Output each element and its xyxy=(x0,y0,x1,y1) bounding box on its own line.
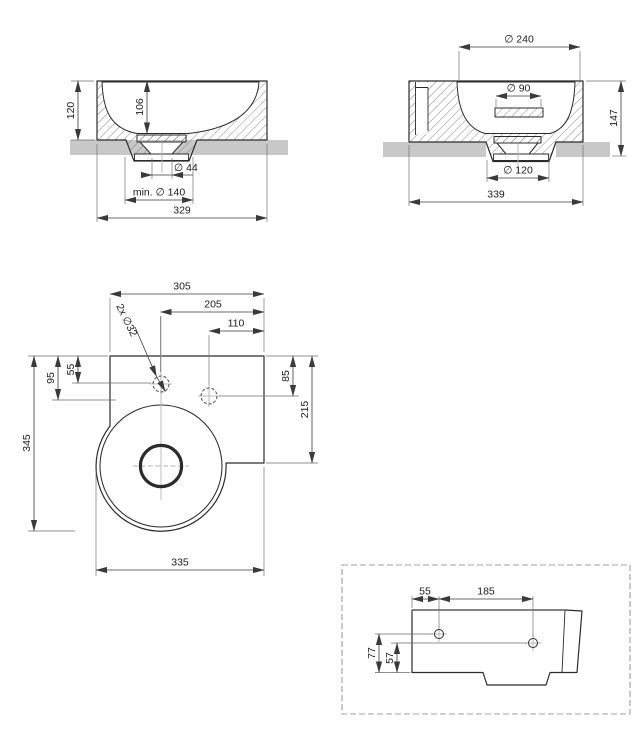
drain-pedestal-base xyxy=(135,154,189,161)
dim-label-bowl-diameter: ∅ 240 xyxy=(504,34,534,46)
dim-label-ledge-depth: 215 xyxy=(299,401,311,419)
dim-label-hole1-from-left: 55 xyxy=(419,586,431,598)
dim-label-hole2-offset: 110 xyxy=(228,318,245,330)
basin-rear-outline xyxy=(412,610,582,685)
dim-label-side-depth: 339 xyxy=(487,189,505,201)
dim-label-front-width: 329 xyxy=(173,205,191,217)
dim-label-hole1-from-top: 55 xyxy=(65,364,77,376)
washbasin-dimension-drawing: 120 106 ∅ 44 min. ∅ 140 329 xyxy=(0,0,640,733)
back-wall-face xyxy=(416,83,428,135)
dim-label-bowl-depth: 106 xyxy=(134,98,146,116)
dim-label-hole2-from-top: 85 xyxy=(280,370,292,382)
dim-label-hole1-height: 77 xyxy=(366,647,378,659)
mounting-surface-band xyxy=(383,142,486,157)
plan-view: 2x ∅32 305 205 110 345 xyxy=(21,281,318,577)
dim-label-drain-hole: ∅ 44 xyxy=(174,162,198,174)
dim-label-min-clearance: min. ∅ 140 xyxy=(133,187,185,199)
dim-label-hole1-offset: 205 xyxy=(204,299,222,311)
drain-flange xyxy=(137,135,186,142)
dim-label-hole-spacing: 185 xyxy=(477,586,495,598)
dim-label-plan-width-top: 305 xyxy=(173,281,191,293)
drain-pedestal-base xyxy=(494,154,549,161)
dim-label-bowl-from-top: 95 xyxy=(45,372,57,384)
dim-label-waste-cover: ∅ 90 xyxy=(507,83,531,95)
dim-label-tap-holes: 2x ∅32 xyxy=(113,302,139,339)
side-section-view: ∅ 240 ∅ 90 147 ∅ 120 339 xyxy=(383,34,626,207)
basin-plan-outline xyxy=(96,356,264,531)
dim-label-base-width: ∅ 120 xyxy=(503,165,533,177)
dim-label-plan-depth: 345 xyxy=(21,434,33,452)
front-section-view: 120 106 ∅ 44 min. ∅ 140 329 xyxy=(65,81,288,222)
dim-label-hole2-height: 57 xyxy=(384,652,396,664)
rear-detail-view: 55 185 77 57 xyxy=(342,565,630,714)
drain-flange xyxy=(494,137,541,144)
dim-label-front-height: 120 xyxy=(65,102,77,120)
dim-label-plan-width: 335 xyxy=(171,557,189,569)
dim-label-side-height: 147 xyxy=(608,109,620,127)
technical-drawing-sheet: 120 106 ∅ 44 min. ∅ 140 329 xyxy=(0,0,640,733)
waste-cover-section xyxy=(495,108,543,117)
